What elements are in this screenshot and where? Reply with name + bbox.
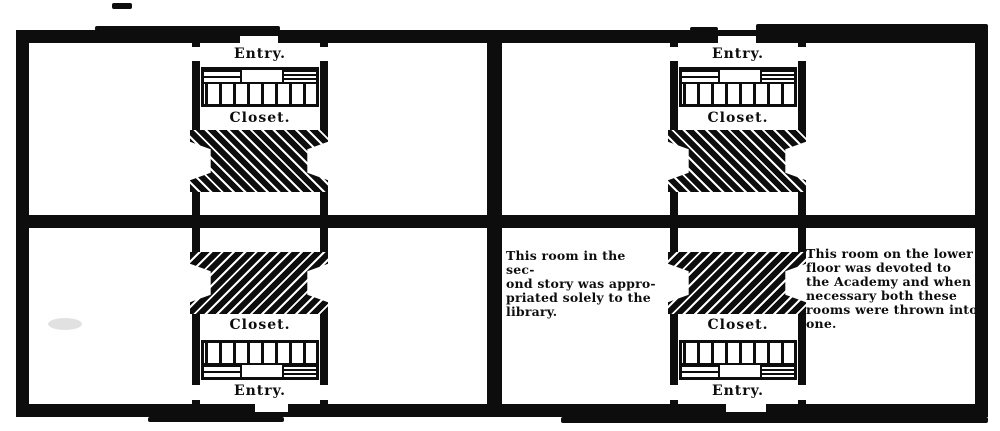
hall-wall-left [192, 43, 200, 47]
hall-wall-right [798, 228, 806, 252]
hall-wall-left [192, 228, 200, 252]
hall-wall-left [670, 228, 678, 252]
scanned-floor-plan-figure: Entry. Closet. Closet. Entry. [0, 0, 1000, 431]
entry-room-label: Entry. [200, 46, 320, 62]
stair-landing-left [682, 70, 720, 82]
stair-landing [682, 70, 794, 84]
note-line: priated solely to the [506, 291, 658, 305]
stair-treads [683, 84, 793, 104]
hall-wall-right [320, 400, 328, 404]
hall-wall-left [670, 43, 678, 47]
hall-wall-right [798, 314, 806, 385]
scan-smudge [112, 3, 132, 9]
staircase [201, 340, 319, 380]
stair-treads [683, 343, 793, 363]
stair-landing [682, 363, 794, 377]
hall-wall-left [670, 314, 678, 385]
hall-wall-right [320, 43, 328, 47]
hall-wall-right [320, 228, 328, 252]
note-line: the Academy and when [806, 275, 990, 289]
hall-wall-right [798, 192, 806, 215]
closet-room-label: Closet. [200, 110, 320, 126]
entry-room-label: Entry. [200, 383, 320, 399]
hall-wall-left [670, 61, 678, 130]
stair-landing-right [282, 365, 316, 377]
chimney-stack [668, 130, 806, 192]
hall-wall-left [670, 400, 678, 404]
staircase [679, 340, 797, 380]
note-line: one. [806, 317, 990, 331]
closet-room-label: Closet. [678, 317, 798, 333]
stair-landing-right [760, 365, 794, 377]
stair-landing [204, 363, 316, 377]
note-line: floor was devoted to [806, 261, 990, 275]
door-opening [726, 404, 766, 412]
stair-landing-left [204, 365, 242, 377]
hall-wall-left [192, 192, 200, 215]
closet-room-label: Closet. [200, 317, 320, 333]
stair-landing [204, 70, 316, 84]
door-opening [718, 36, 756, 43]
scan-smudge [561, 417, 988, 423]
hall-wall-left [192, 400, 200, 404]
hall-wall-left [670, 192, 678, 215]
scan-smudge [148, 417, 284, 422]
entry-room-label: Entry. [678, 383, 798, 399]
stair-treads [205, 343, 315, 363]
hall-wall-right [320, 314, 328, 385]
hall-wall-left [192, 314, 200, 385]
stair-landing-right [760, 70, 794, 82]
staircase [679, 67, 797, 107]
note-line: This room in the sec- [506, 249, 658, 277]
cross-wall [16, 215, 988, 228]
note-line: necessary both these [806, 289, 990, 303]
door-opening [255, 404, 288, 412]
hall-wall-right [798, 61, 806, 130]
hall-wall-right [320, 192, 328, 215]
stair-treads [205, 84, 315, 104]
room-note-library: This room in the sec- ond story was appr… [506, 249, 658, 319]
note-line: library. [506, 305, 658, 319]
closet-room-label: Closet. [678, 110, 798, 126]
chimney-stack [668, 252, 806, 314]
room-note-academy: This room on the lower floor was devoted… [806, 247, 990, 331]
stair-landing-right [282, 70, 316, 82]
entry-room-label: Entry. [678, 46, 798, 62]
hall-wall-left [192, 61, 200, 130]
hall-wall-right [798, 43, 806, 47]
stair-landing-left [204, 70, 242, 82]
note-line: ond story was appro- [506, 277, 658, 291]
staircase [201, 67, 319, 107]
hall-wall-right [320, 61, 328, 130]
note-line: rooms were thrown into [806, 303, 990, 317]
door-opening [240, 36, 278, 43]
hall-wall-right [798, 400, 806, 404]
stair-landing-left [682, 365, 720, 377]
note-line: This room on the lower [806, 247, 990, 261]
